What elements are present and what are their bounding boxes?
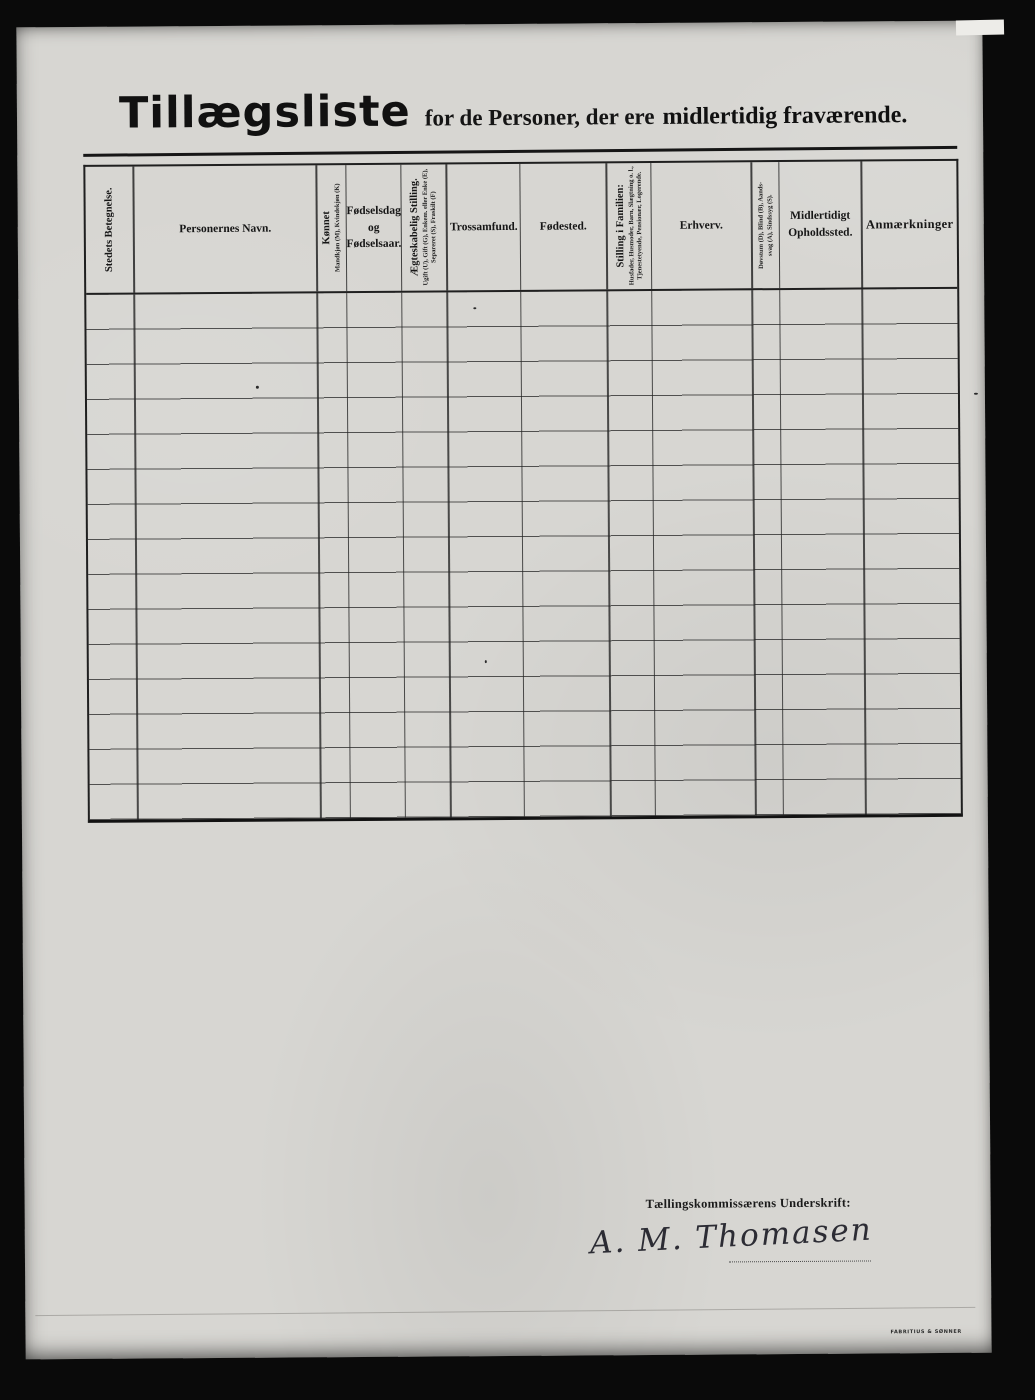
scan-speckle — [974, 393, 978, 395]
table-body — [86, 289, 961, 820]
header-label: Døvstum (D), Blind (B), Aands- — [757, 165, 766, 285]
body-column — [520, 291, 610, 817]
body-column — [779, 289, 865, 815]
header-cell-anmaerkninger: Anmærkninger — [860, 161, 957, 288]
header-cell-midlertidigt-opholdssted: Midlertidigt Opholdssted. — [778, 161, 861, 288]
header-sublabel: svag (A), Sindssyg (S). — [766, 165, 775, 285]
body-column — [316, 293, 350, 818]
header-label: Trossamfund. — [450, 219, 518, 236]
header-cell-fodested: Fødested. — [519, 163, 606, 290]
paper-fold-line — [35, 1307, 975, 1316]
header-cell-personernes-navn: Personernes Navn. — [132, 165, 316, 292]
scanned-document-viewport: { "document": { "title": { "main": "Till… — [0, 0, 1035, 1400]
title-main: Tillægsliste — [119, 87, 411, 139]
scan-speckle — [256, 386, 259, 389]
printer-mark: FABRITIUS & SØNNER — [890, 1329, 961, 1335]
header-label: Midlertidigt Opholdssted. — [783, 208, 858, 242]
signature-dotted-line — [729, 1259, 871, 1262]
body-column — [861, 289, 961, 815]
header-cell-stilling-i-familien: Stilling i Familien: Husfader, Husmoder,… — [605, 163, 651, 289]
header-cell-stedets-betegnelse: Stedets Betegnelse. — [85, 167, 133, 293]
body-column — [446, 292, 524, 818]
header-cell-dovstum: Døvstum (D), Blind (B), Aands- svag (A),… — [750, 162, 779, 288]
header-label: Ægteskabelig Stilling. — [409, 168, 422, 288]
body-column — [86, 295, 137, 820]
scan-speckle — [485, 660, 487, 663]
body-column — [346, 293, 405, 818]
header-label: Erhverv. — [680, 217, 723, 234]
header-label: Stilling i Familien: — [614, 166, 627, 286]
vertical-text-wrap: Døvstum (D), Blind (B), Aands- svag (A),… — [752, 162, 779, 288]
body-column — [606, 291, 655, 816]
title-rule — [83, 146, 957, 157]
header-label: Anmærkninger — [866, 215, 954, 234]
title-subtitle-regular: for de Personer, der ere — [425, 104, 655, 132]
signature-label: Tællingskommissærens Underskrift: — [646, 1196, 851, 1212]
scan-speckle — [473, 307, 476, 309]
header-cell-aegteskabelig-stilling: Ægteskabelig Stilling. Ugift (U), Gift (… — [400, 164, 446, 290]
vertical-text-wrap: Stilling i Familien: Husfader, Husmoder,… — [607, 163, 651, 289]
document-page: Tillægsliste for de Personer, der ere mi… — [16, 21, 991, 1360]
title-subtitle-bold: midlertidig fraværende. — [662, 102, 907, 131]
vertical-text-wrap: Stedets Betegnelse. — [85, 167, 133, 293]
body-column — [133, 293, 320, 819]
scan-artifact — [956, 19, 1004, 35]
vertical-text-wrap: Kønnet Mandkjøn (M), Kvindekjøn (K) — [317, 165, 346, 291]
header-label: Personernes Navn. — [179, 220, 271, 237]
page-title: Tillægsliste for de Personer, der ere mi… — [119, 83, 919, 139]
body-column — [651, 290, 755, 816]
header-sublabel: Mandkjøn (M), Kvindekjøn (K) — [334, 168, 343, 288]
header-sublabel: Husfader, Husmoder, Barn, Slægtning o. l… — [627, 166, 644, 286]
header-cell-fodselsdag: Fødselsdag og Fødselsaar. — [345, 165, 401, 291]
header-label: Kønnet — [321, 168, 334, 288]
header-cell-konnet: Kønnet Mandkjøn (M), Kvindekjøn (K) — [315, 165, 346, 291]
header-label: Fødested. — [540, 218, 587, 235]
census-table: Stedets Betegnelse. Personernes Navn. Kø… — [83, 159, 963, 823]
header-label: Stedets Betegnelse. — [103, 170, 116, 290]
vertical-text-wrap: Ægteskabelig Stilling. Ugift (U), Gift (… — [401, 164, 446, 290]
header-label: Fødselsdag og Fødselsaar. — [346, 203, 401, 253]
header-cell-trossamfund: Trossamfund. — [445, 164, 520, 291]
body-column — [401, 292, 450, 817]
table-header-row: Stedets Betegnelse. Personernes Navn. Kø… — [85, 161, 957, 295]
header-cell-erhverv: Erhverv. — [650, 162, 751, 289]
header-sublabel: Ugift (U), Gift (G), Enkem. eller Enke (… — [422, 167, 439, 287]
signature-handwriting: A. M. Thomasen — [589, 1212, 873, 1262]
body-column — [751, 290, 783, 815]
